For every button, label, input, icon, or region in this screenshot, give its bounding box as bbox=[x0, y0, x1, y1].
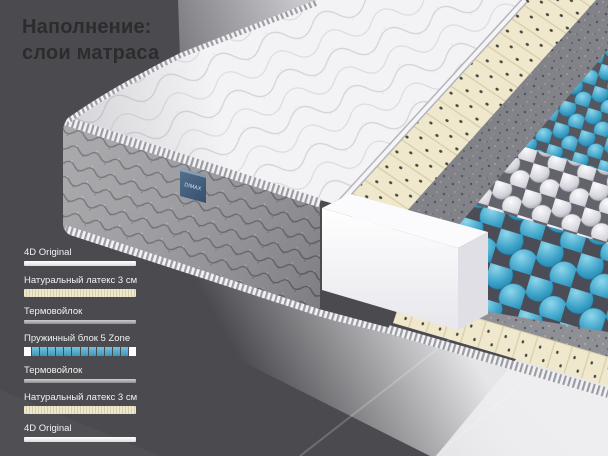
title-line-1: Наполнение: bbox=[22, 14, 159, 40]
title-line-2: слои матраса bbox=[22, 40, 159, 66]
layer-swatch-latex bbox=[24, 406, 136, 414]
layer-row-fabric-top: 4D Original bbox=[24, 247, 136, 266]
layer-row-felt-bottom: Термовойлок bbox=[24, 365, 136, 383]
infographic-canvas: DIMAX Наполнение: слои матраса 4D Origin… bbox=[0, 0, 608, 456]
layer-swatch-fabric bbox=[24, 261, 136, 266]
layer-swatch-felt bbox=[24, 320, 136, 324]
layer-row-felt-top: Термовойлок bbox=[24, 306, 136, 324]
layer-swatch-latex bbox=[24, 289, 136, 297]
layer-swatch-felt bbox=[24, 379, 136, 383]
layer-label: Натуральный латекс 3 см bbox=[24, 392, 136, 403]
layer-label: Термовойлок bbox=[24, 306, 136, 317]
page-title: Наполнение: слои матраса bbox=[22, 14, 159, 66]
layer-row-latex-top: Натуральный латекс 3 см bbox=[24, 275, 136, 297]
layer-label: 4D Original bbox=[24, 247, 136, 258]
layer-row-springs: Пружинный блок 5 Zone bbox=[24, 333, 136, 356]
layer-label: Пружинный блок 5 Zone bbox=[24, 333, 136, 344]
layer-swatch-springs bbox=[24, 347, 136, 356]
layer-row-latex-bottom: Натуральный латекс 3 см bbox=[24, 392, 136, 414]
layer-label: Термовойлок bbox=[24, 365, 136, 376]
layer-legend: 4D Original Натуральный латекс 3 см Терм… bbox=[24, 247, 136, 451]
layer-label: 4D Original bbox=[24, 423, 136, 434]
layer-swatch-fabric bbox=[24, 437, 136, 442]
layer-row-fabric-bottom: 4D Original bbox=[24, 423, 136, 442]
layer-label: Натуральный латекс 3 см bbox=[24, 275, 136, 286]
